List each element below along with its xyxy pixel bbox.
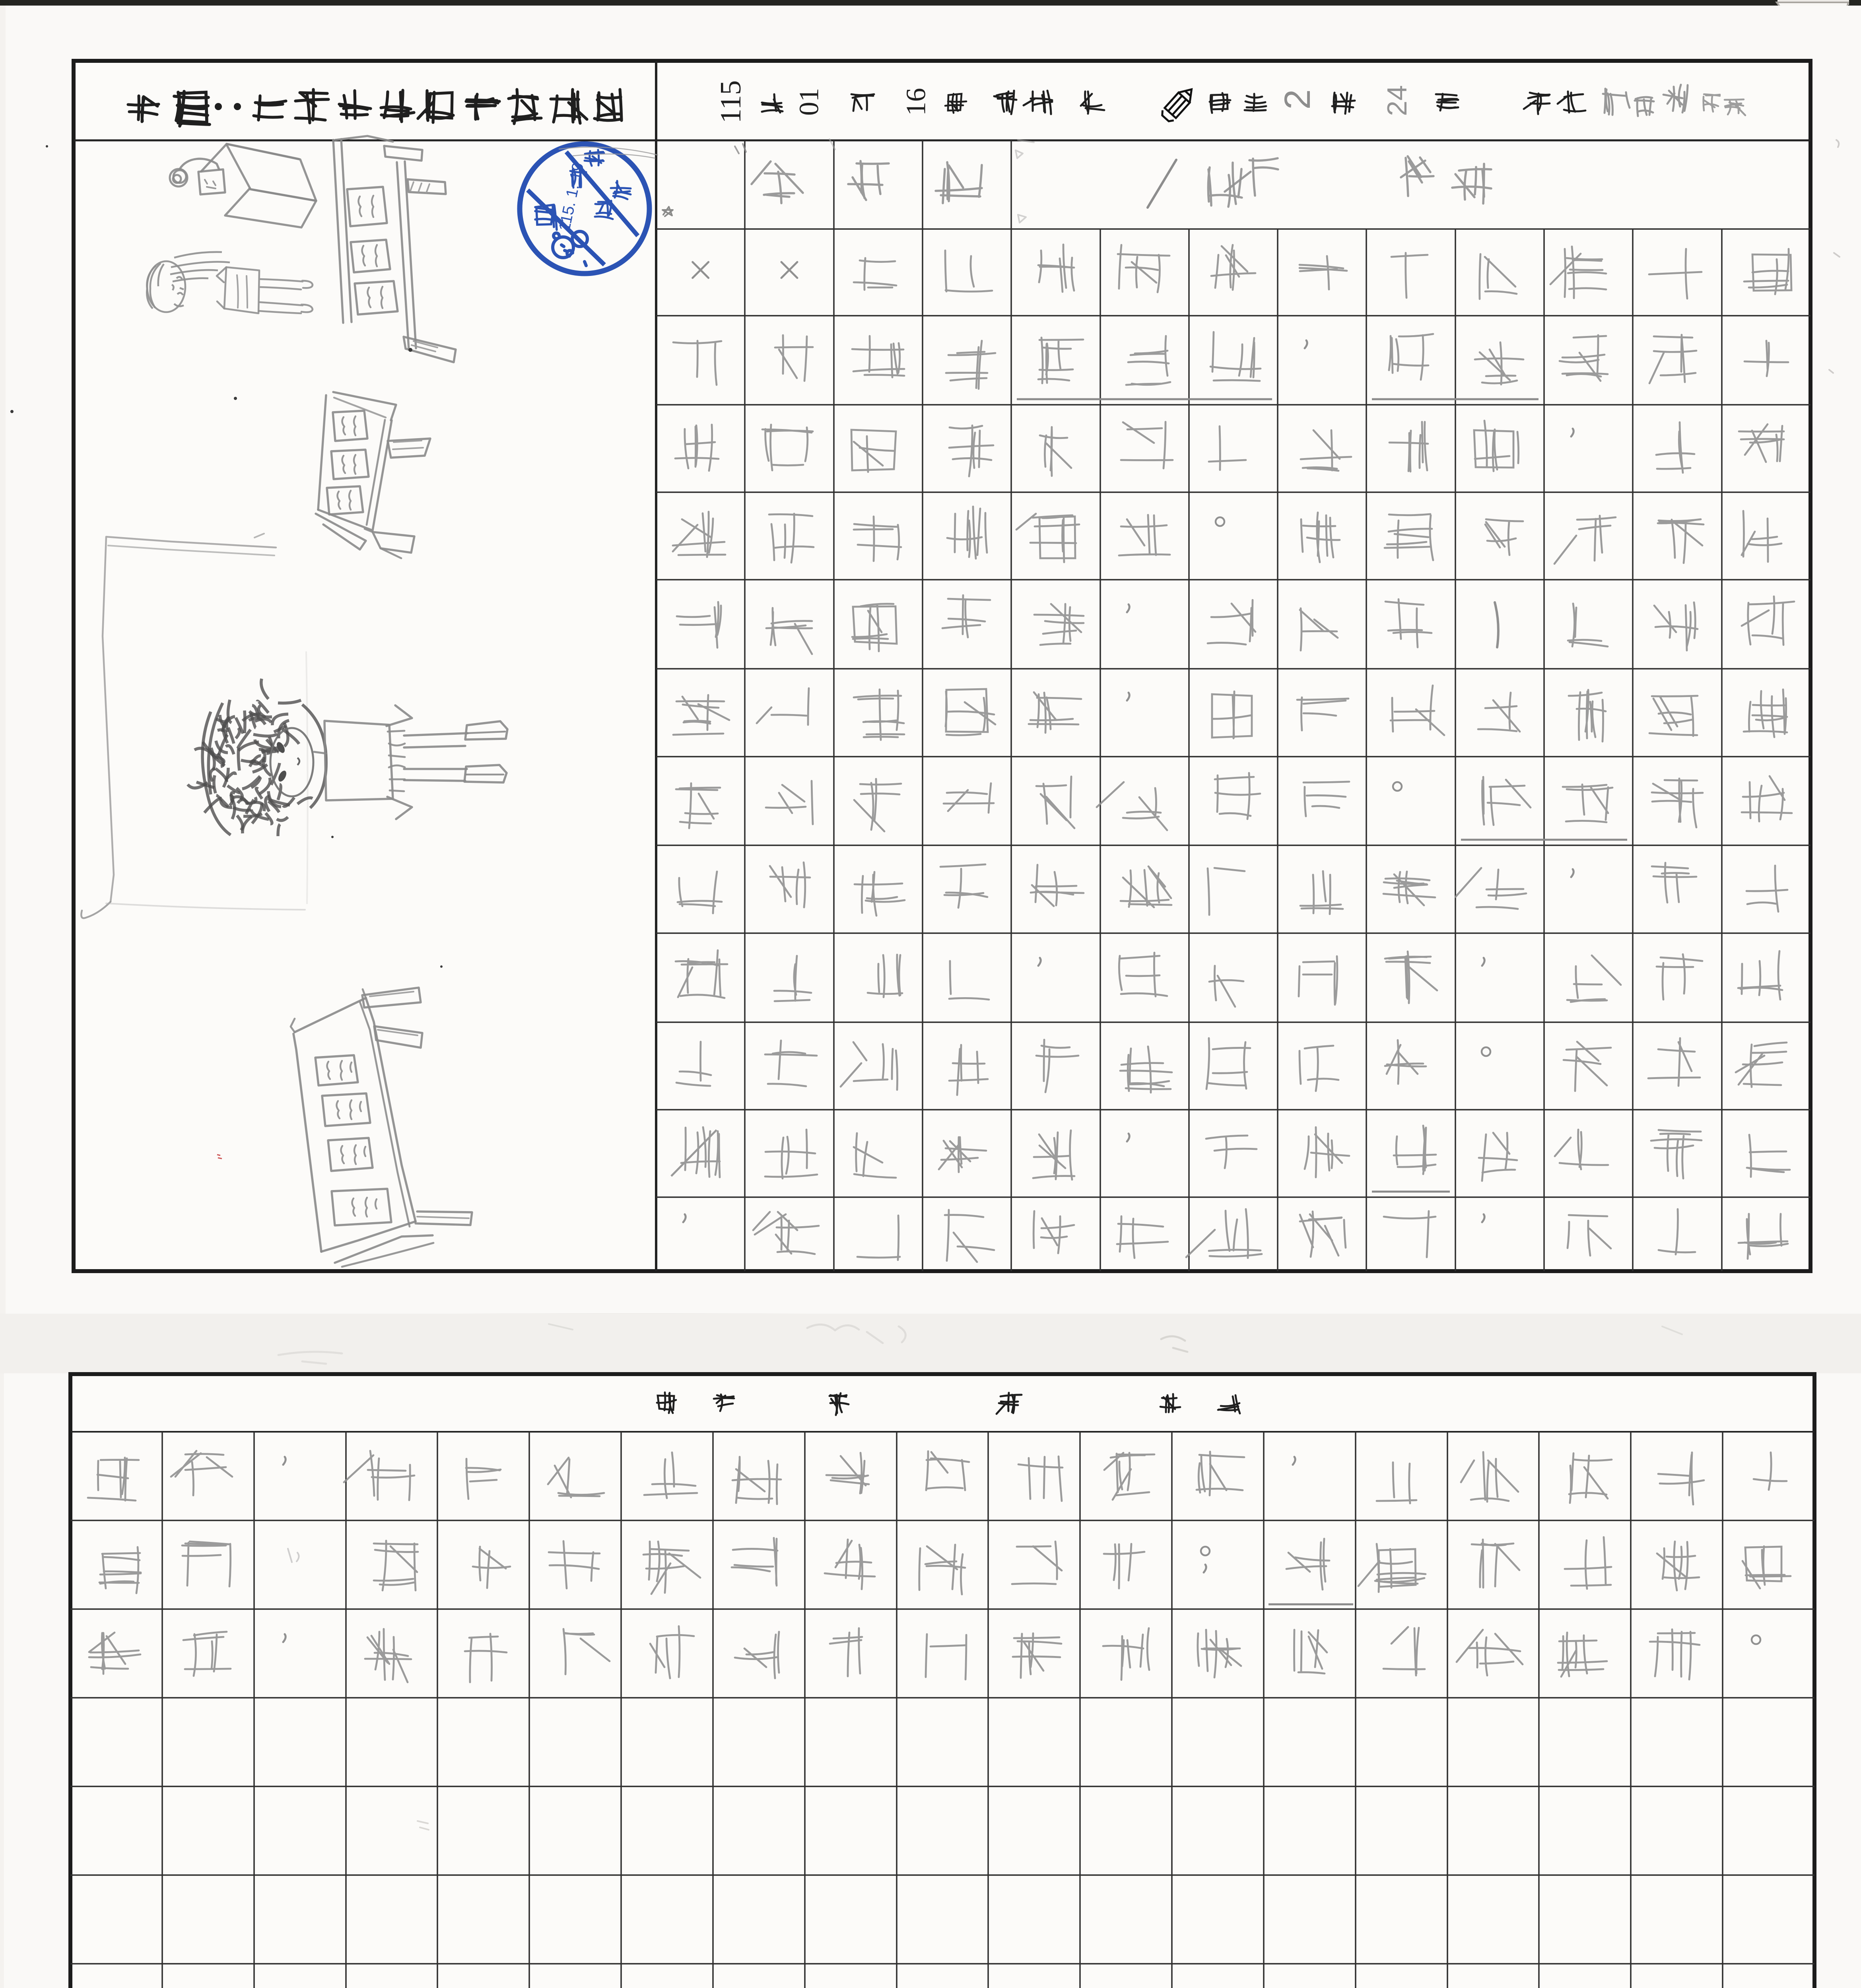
svg-text:16: 16 (901, 88, 932, 116)
svg-text:115: 115 (715, 80, 747, 123)
svg-text:01: 01 (794, 88, 825, 116)
svg-text:24: 24 (1381, 85, 1412, 116)
svg-text:2: 2 (1277, 89, 1318, 109)
